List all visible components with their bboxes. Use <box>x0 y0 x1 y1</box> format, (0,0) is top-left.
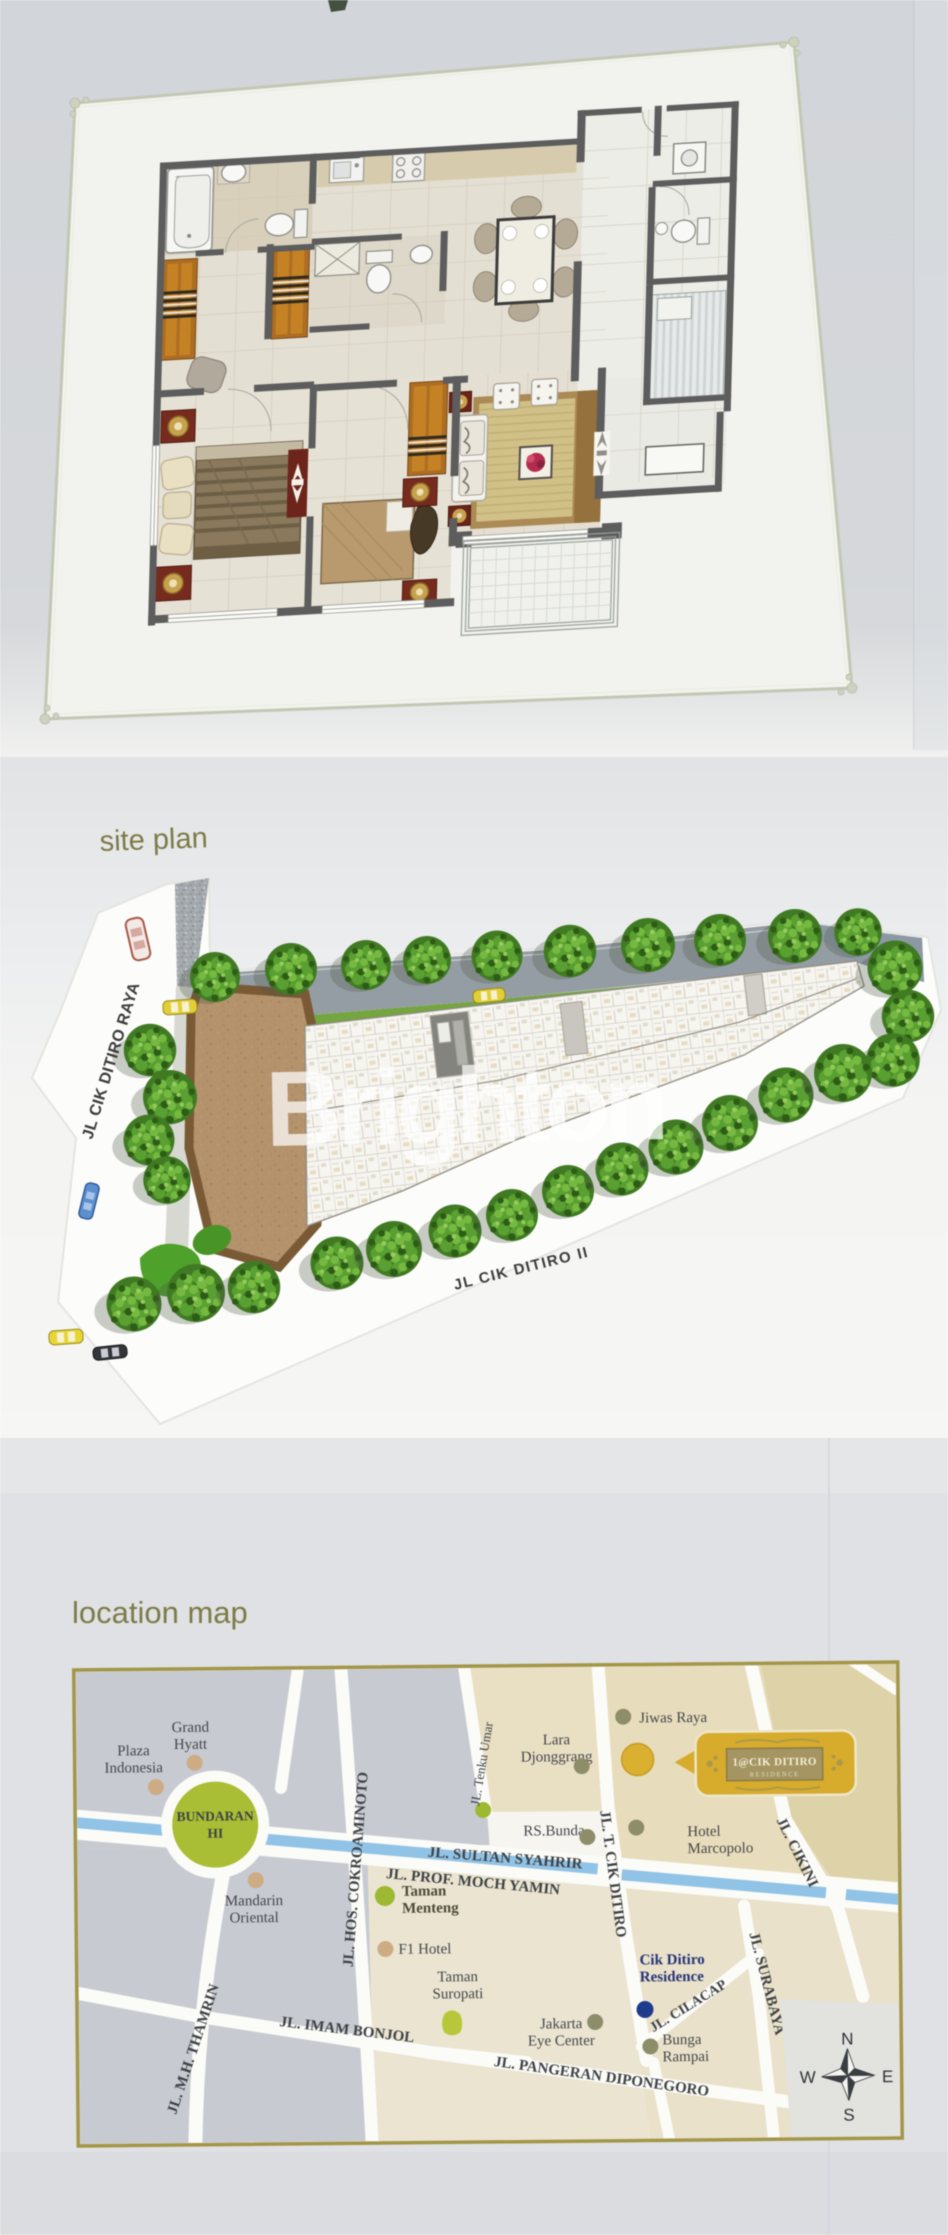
svg-text:Marcopolo: Marcopolo <box>687 1840 753 1857</box>
svg-text:RESIDENCE: RESIDENCE <box>750 1771 800 1778</box>
svg-text:Cik Ditiro: Cik Ditiro <box>639 1952 704 1969</box>
svg-text:Plaza: Plaza <box>117 1743 150 1759</box>
svg-text:Menteng: Menteng <box>402 1900 459 1917</box>
svg-text:site plan: site plan <box>99 822 208 858</box>
svg-text:Rampai: Rampai <box>662 2049 709 2065</box>
svg-text:Indonesia: Indonesia <box>104 1760 163 1777</box>
svg-text:Suropati: Suropati <box>432 1986 483 2002</box>
svg-text:Oriental: Oriental <box>229 1910 278 1926</box>
svg-text:E: E <box>882 2067 894 2086</box>
svg-text:Residence: Residence <box>640 1969 705 1986</box>
svg-text:Brighton: Brighton <box>264 1042 664 1169</box>
svg-text:W: W <box>800 2068 816 2087</box>
svg-text:HI: HI <box>207 1826 223 1841</box>
svg-text:Taman: Taman <box>437 1969 478 1985</box>
svg-text:Eye Center: Eye Center <box>528 2033 595 2050</box>
svg-text:Lara: Lara <box>543 1732 571 1748</box>
svg-text:S: S <box>843 2105 855 2124</box>
svg-text:Mandarin: Mandarin <box>225 1893 284 1910</box>
svg-text:Hotel: Hotel <box>687 1824 720 1840</box>
svg-text:RS.Bunda: RS.Bunda <box>523 1823 585 1840</box>
svg-text:F1 Hotel: F1 Hotel <box>398 1941 451 1958</box>
svg-text:Jakarta: Jakarta <box>540 2016 583 2032</box>
svg-text:BUNDARAN: BUNDARAN <box>176 1808 254 1824</box>
svg-text:location map: location map <box>72 1595 248 1630</box>
svg-text:1@CIK DITIRO: 1@CIK DITIRO <box>732 1756 817 1769</box>
svg-text:Jiwas Raya: Jiwas Raya <box>639 1710 707 1727</box>
svg-text:Grand: Grand <box>171 1720 209 1736</box>
svg-text:Hyatt: Hyatt <box>174 1737 208 1753</box>
svg-text:N: N <box>841 2029 853 2048</box>
svg-text:Bunga: Bunga <box>662 2032 702 2048</box>
